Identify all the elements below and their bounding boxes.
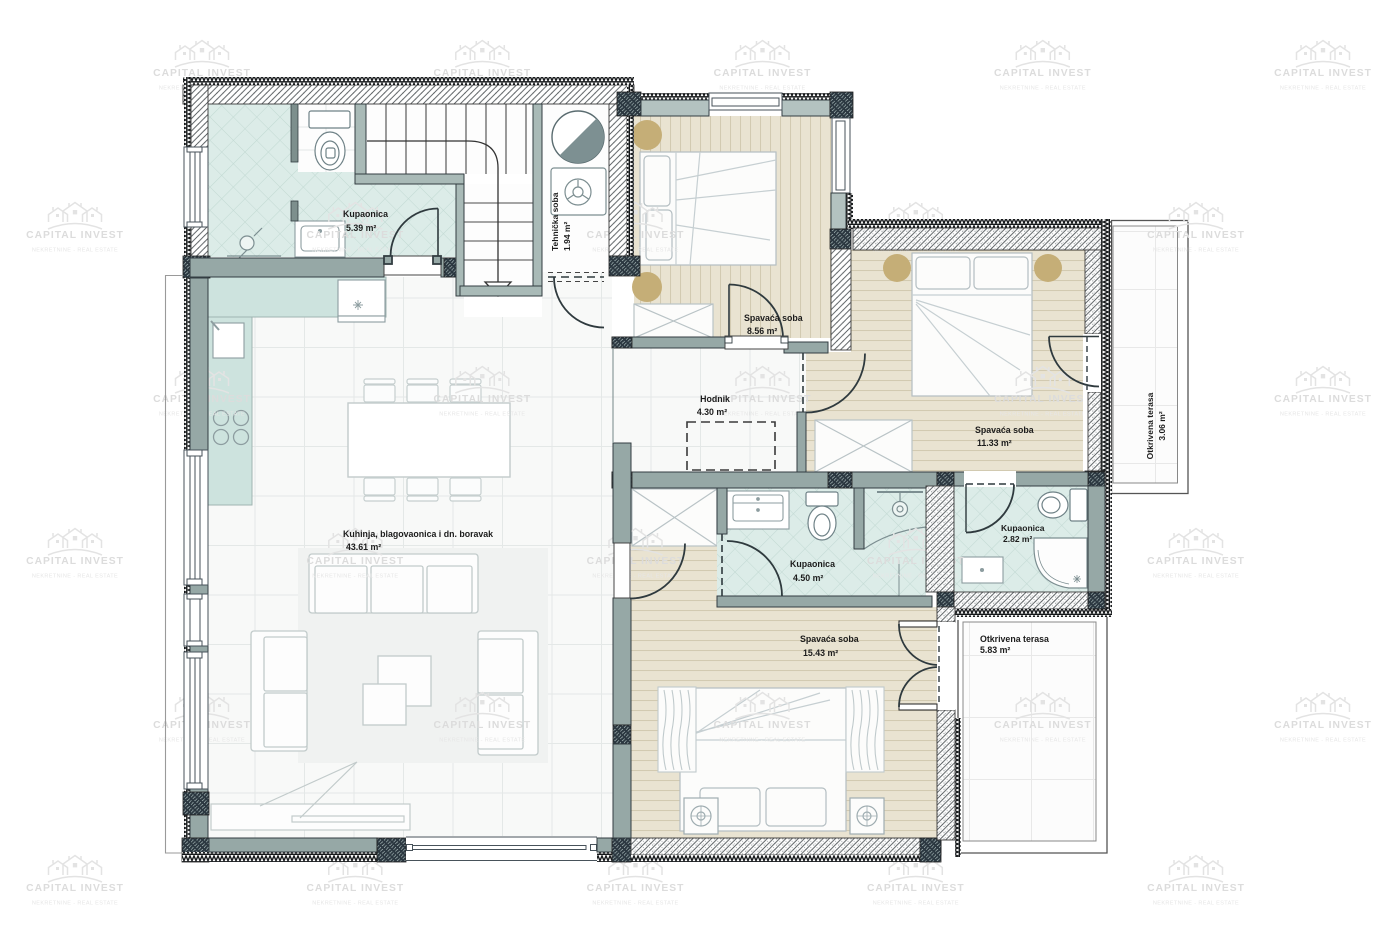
svg-text:5.83 m²: 5.83 m² (980, 645, 1010, 655)
svg-text:Hodnik: Hodnik (700, 394, 730, 404)
svg-text:3.06 m²: 3.06 m² (1157, 411, 1167, 440)
svg-text:Spavaća soba: Spavaća soba (744, 313, 803, 323)
svg-text:43.61 m²: 43.61 m² (346, 542, 381, 552)
svg-text:1.94 m²: 1.94 m² (562, 222, 572, 251)
svg-text:Kuhinja, blagovaonica i dn. bo: Kuhinja, blagovaonica i dn. boravak (343, 529, 493, 539)
svg-text:Otkrivena terasa: Otkrivena terasa (1145, 392, 1155, 459)
svg-text:15.43 m²: 15.43 m² (803, 648, 838, 658)
svg-text:11.33 m²: 11.33 m² (977, 438, 1012, 448)
svg-text:5.39 m²: 5.39 m² (346, 223, 376, 233)
svg-text:4.30 m²: 4.30 m² (697, 407, 727, 417)
svg-text:Tehnička soba: Tehnička soba (550, 192, 560, 251)
svg-text:2.82 m²: 2.82 m² (1003, 534, 1032, 544)
svg-text:Kupaonica: Kupaonica (343, 209, 388, 219)
svg-text:Otkrivena terasa: Otkrivena terasa (980, 634, 1049, 644)
svg-text:Kupaonica: Kupaonica (1001, 523, 1045, 533)
svg-text:Kupaonica: Kupaonica (790, 559, 835, 569)
svg-text:8.56 m²: 8.56 m² (747, 326, 777, 336)
svg-text:4.50 m²: 4.50 m² (793, 573, 823, 583)
svg-text:Spavaća soba: Spavaća soba (800, 634, 859, 644)
svg-text:Spavaća soba: Spavaća soba (975, 425, 1034, 435)
